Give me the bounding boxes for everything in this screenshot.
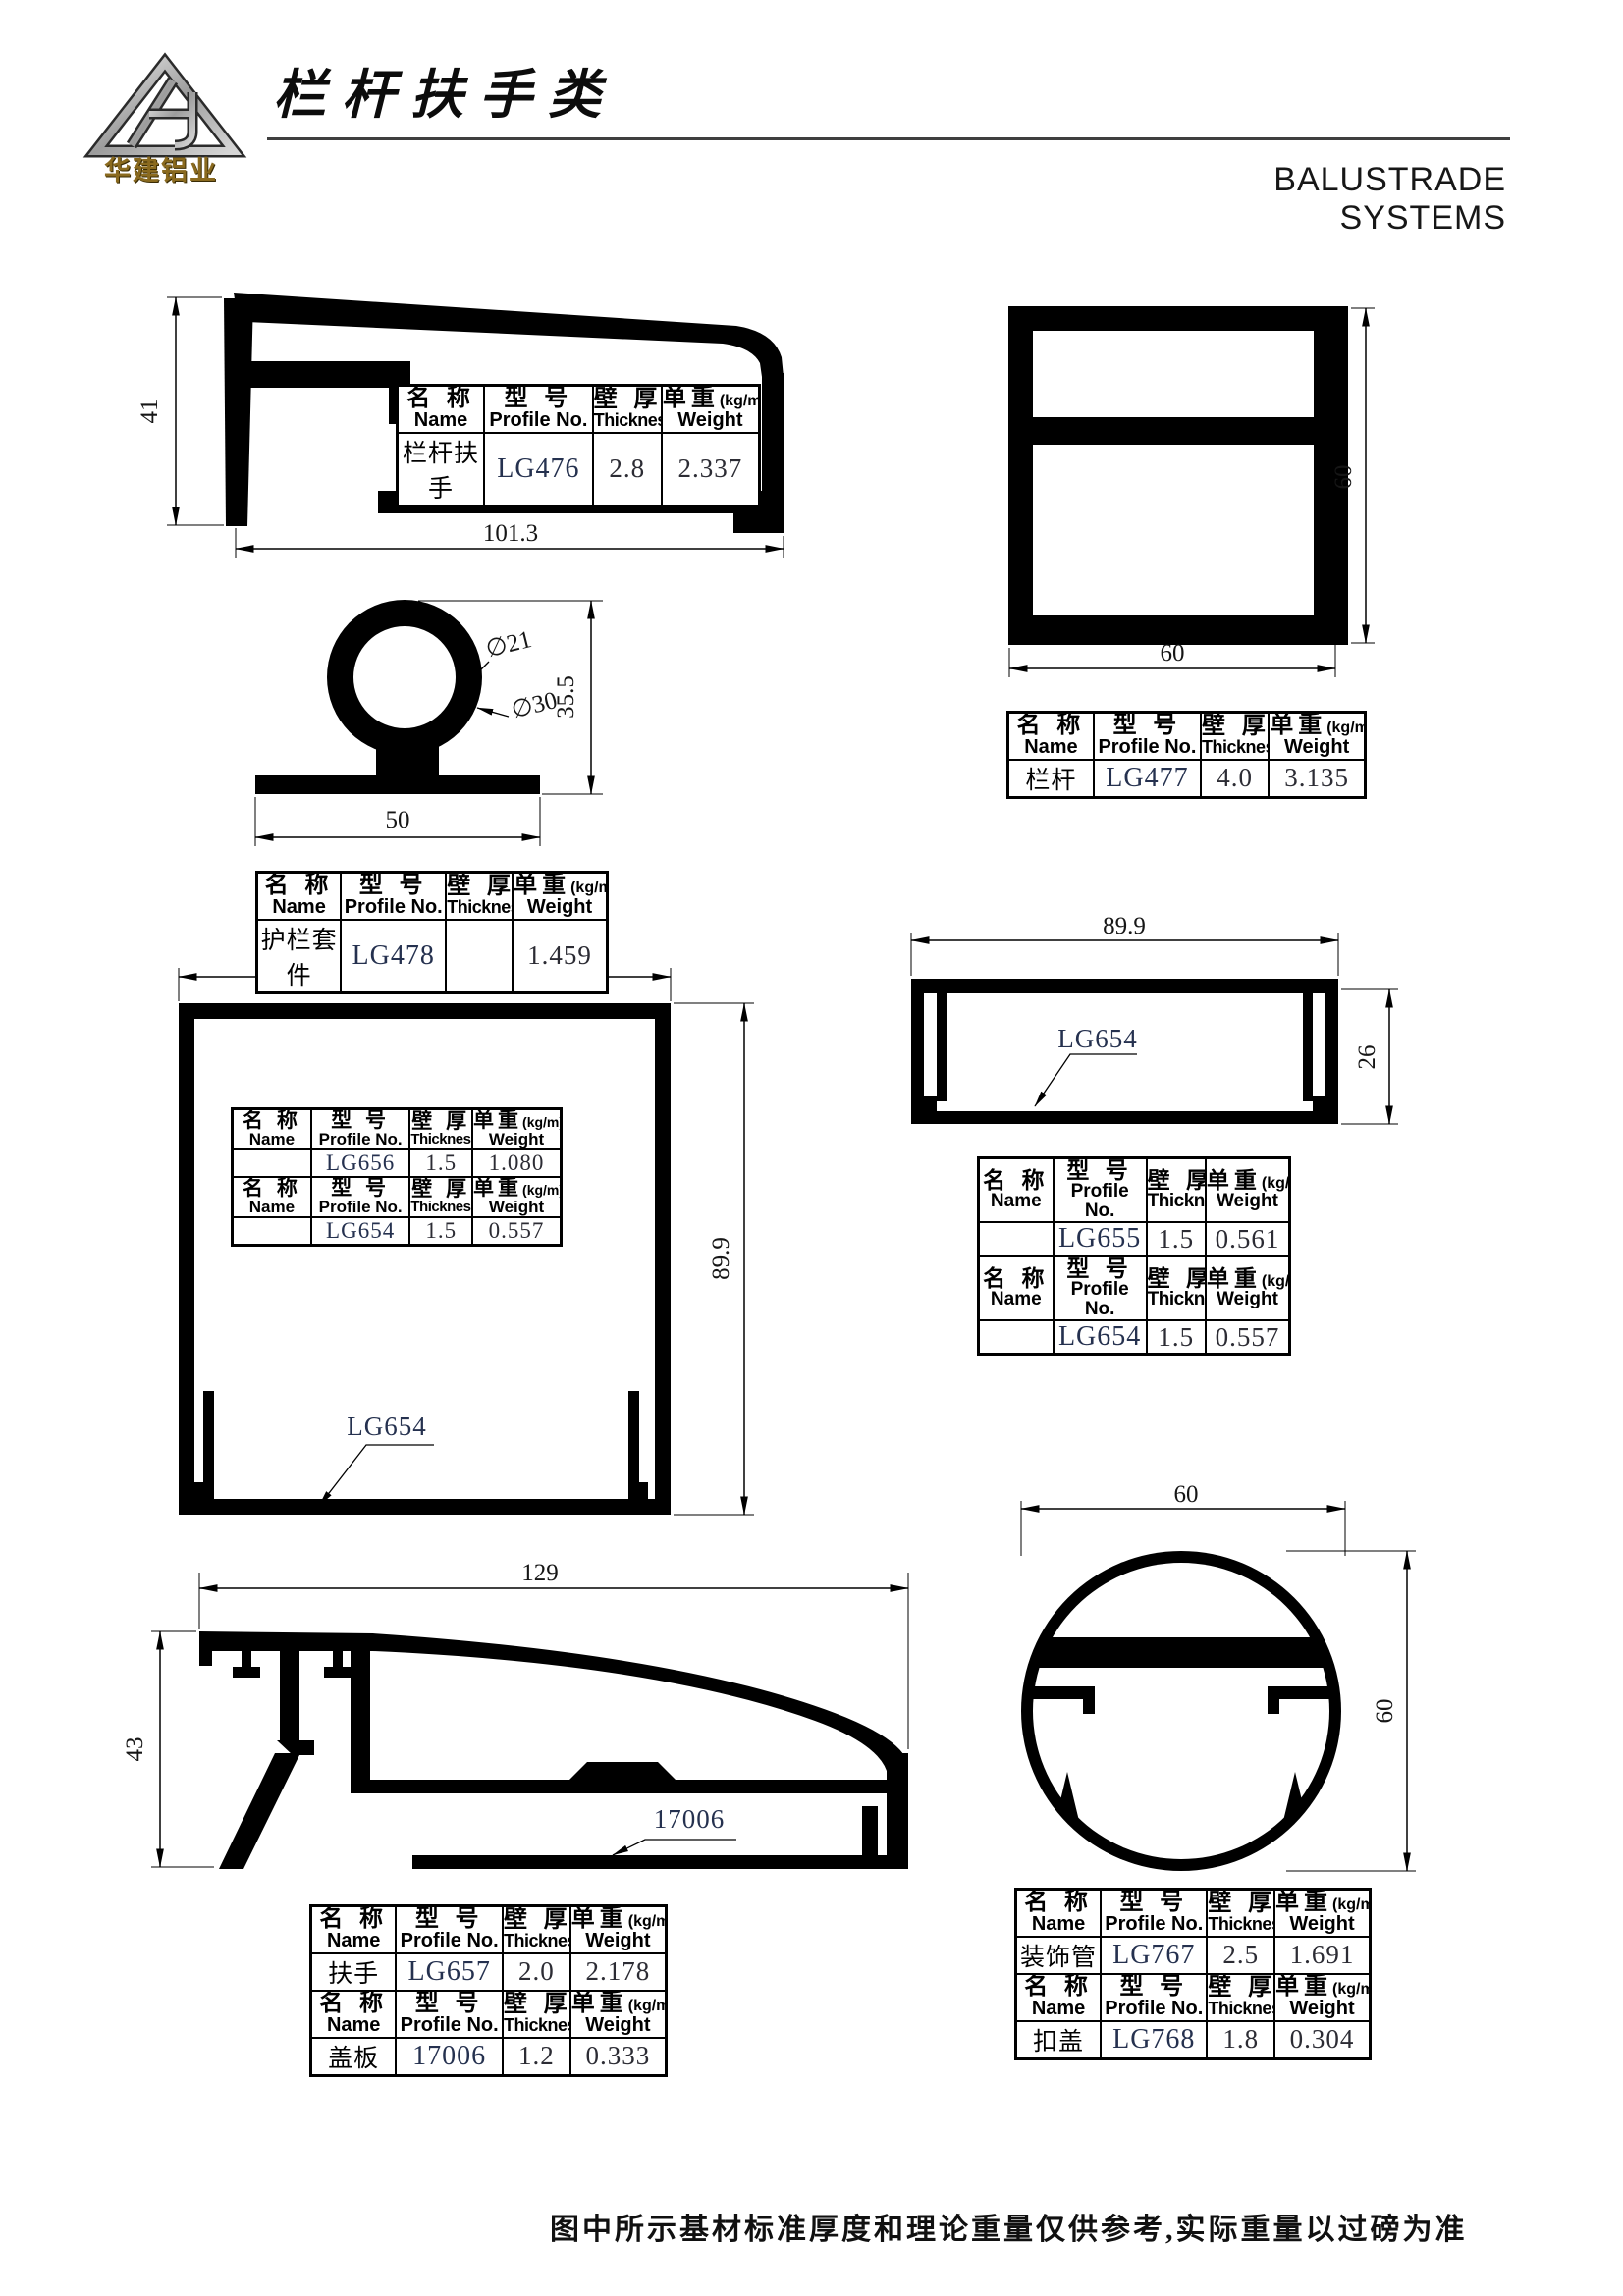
spec-table-rail-lg476: 名 称Name 型 号Profile No. 壁 厚Thickness 单重(k… (396, 384, 761, 507)
cell-weight: 1.459 (513, 920, 607, 993)
callout-lg654: LG654 (319, 1412, 434, 1506)
cell-name (979, 1320, 1054, 1355)
cell-name: 扣盖 (1016, 2021, 1102, 2059)
cell-weight: 0.557 (1206, 1320, 1290, 1355)
col-header-weight: 单重(kg/m)Weight (570, 1906, 667, 1953)
cell-weight: 2.178 (570, 1953, 667, 1991)
col-header-name: 名 称Name (979, 1158, 1054, 1222)
spec-table-tube-lg767: 名 称Name 型 号Profile No. 壁 厚Thickness 单重(k… (1014, 1888, 1372, 2060)
col-header-weight: 单重(kg/m)Weight (472, 1177, 561, 1217)
cell-profile-no: LG654 (1054, 1320, 1147, 1355)
cell-weight: 1.080 (472, 1149, 561, 1177)
drawing-box-lg656: 89.9 89.9 LG654 (118, 942, 766, 1592)
cell-thickness: 1.5 (1147, 1320, 1206, 1355)
col-header-thickness: 壁 厚Thickness (1207, 1974, 1274, 2021)
spec-table-channel-lg655: 名 称Name 型 号Profile No. 壁 厚Thickness 单重(k… (977, 1156, 1291, 1356)
cell-name: 栏杆扶手 (398, 433, 485, 507)
cell-thickness: 1.8 (1207, 2021, 1274, 2059)
profile-rail-lg657 (199, 1631, 908, 1869)
drawing-tube-lg767: 60 60 (1001, 1477, 1434, 1890)
cell-profile-no: LG477 (1094, 760, 1201, 798)
spec-row: LG655 1.5 0.561 (979, 1222, 1290, 1256)
col-header-name: 名 称Name (1016, 1974, 1102, 2021)
company-name: 华建铝业 (82, 149, 240, 187)
cell-weight: 0.557 (472, 1217, 561, 1246)
callout-label: LG654 (1057, 1024, 1138, 1053)
cell-thickness: 1.5 (1147, 1222, 1206, 1256)
col-header-name: 名 称Name (398, 386, 485, 433)
col-header-weight: 单重(kg/m)Weight (472, 1109, 561, 1149)
callout-label: LG654 (347, 1412, 427, 1441)
col-header-name: 名 称Name (257, 873, 342, 920)
cell-name: 护栏套件 (257, 920, 342, 993)
cell-thickness: 1.2 (503, 2038, 570, 2076)
col-header-weight: 单重(kg/m)Weight (1274, 1974, 1371, 2021)
dim-label: 60 (1372, 1699, 1398, 1724)
col-header-thickness: 壁 厚Thickness (503, 1991, 570, 2038)
cell-thickness: 2.5 (1207, 1937, 1274, 1974)
dim-label: 41 (136, 400, 163, 424)
cell-weight: 2.337 (662, 433, 760, 507)
cell-thickness: 2.8 (593, 433, 662, 507)
spec-table-box-lg656: 名 称Name 型 号Profile No. 壁 厚Thickness 单重(k… (231, 1107, 563, 1247)
spec-row: 栏杆扶手 LG476 2.8 2.337 (398, 433, 760, 507)
page-title: 栏杆扶手类 (273, 51, 617, 129)
footer-note: 图中所示基材标准厚度和理论重量仅供参考,实际重量以过磅为准 (550, 2205, 1468, 2248)
dim-label: 60 (1330, 465, 1357, 490)
spec-row: 装饰管 LG767 2.5 1.691 (1016, 1937, 1371, 1974)
dim-label: 35.5 (553, 675, 579, 719)
col-header-profile: 型 号Profile No. (311, 1109, 410, 1149)
cell-name (233, 1149, 311, 1177)
cell-name: 扶手 (311, 1953, 397, 1991)
col-header-profile: 型 号Profile No. (341, 873, 446, 920)
cell-thickness: 1.5 (409, 1217, 472, 1246)
callout-lg654: LG654 (1035, 1024, 1138, 1106)
col-header-profile: 型 号Profile No. (396, 1906, 503, 1953)
col-header-weight: 单重(kg/m)Weight (1269, 713, 1365, 760)
dim-height-89-9: 89.9 (674, 1003, 754, 1515)
company-logo (90, 59, 240, 155)
dim-label: 89.9 (708, 1237, 734, 1280)
dim-label: 129 (521, 1560, 559, 1586)
cell-name (233, 1217, 311, 1246)
logo-triangle-icon (96, 63, 234, 151)
dim-width-50: 50 (255, 797, 540, 846)
col-header-profile: 型 号Profile No. (396, 1991, 503, 2038)
cell-name (979, 1222, 1054, 1256)
profile-cover-17006 (412, 1855, 908, 1869)
col-header-profile: 型 号Profile No. (1054, 1256, 1147, 1320)
cell-profile-no: LG478 (341, 920, 446, 993)
drawing-sleeve-lg478: ∅21 ∅30 35.5 50 (177, 579, 628, 874)
spec-row: LG656 1.5 1.080 (233, 1149, 562, 1177)
col-header-profile: 型 号Profile No. (1054, 1158, 1147, 1222)
cell-name: 盖板 (311, 2038, 397, 2076)
catalog-page: 华建铝业 栏杆扶手类 BALUSTRADE SYSTEMS 41 101.3 (0, 0, 1623, 2296)
dim-height-41: 41 (136, 297, 224, 525)
col-header-thickness: 壁 厚Thickness (503, 1906, 570, 1953)
profile-sleeve-lg478 (255, 600, 540, 794)
col-header-weight: 单重(kg/m)Weight (1206, 1158, 1290, 1222)
col-header-profile: 型 号Profile No. (1101, 1974, 1207, 2021)
profile-tube-lg767 (1016, 1551, 1346, 1871)
cell-profile-no: LG657 (396, 1953, 503, 1991)
spec-row: 扶手 LG657 2.0 2.178 (311, 1953, 667, 1991)
col-header-name: 名 称Name (233, 1177, 311, 1217)
spec-table-sleeve-lg478: 名 称Name 型 号Profile No. 壁 厚Thickness 单重(k… (255, 871, 609, 994)
col-header-thickness: 壁 厚Thickness (409, 1109, 472, 1149)
cell-profile-no: LG768 (1101, 2021, 1207, 2059)
drawing-rail-lg657: 129 43 17006 (128, 1561, 933, 1895)
col-header-thickness: 壁 厚Thickness (1201, 713, 1269, 760)
dim-label: ∅21 (483, 626, 534, 664)
profile-post-lg477 (1008, 306, 1348, 645)
dim-label: 60 (1174, 1481, 1199, 1508)
col-header-thickness: 壁 厚Thickness (1147, 1158, 1206, 1222)
callout-label: 17006 (654, 1804, 726, 1834)
spec-row: LG654 1.5 0.557 (233, 1217, 562, 1246)
cell-profile-no: LG476 (484, 433, 593, 507)
dim-width-101-3: 101.3 (236, 520, 784, 558)
col-header-name: 名 称Name (311, 1906, 397, 1953)
cell-thickness: 2.0 (503, 1953, 570, 1991)
dim-label: 89.9 (1103, 913, 1146, 939)
col-header-name: 名 称Name (979, 1256, 1054, 1320)
col-header-weight: 单重(kg/m)Weight (662, 386, 760, 433)
spec-row: LG654 1.5 0.557 (979, 1320, 1290, 1355)
col-header-name: 名 称Name (1016, 1890, 1102, 1937)
cell-weight: 1.691 (1274, 1937, 1371, 1974)
cell-weight: 0.304 (1274, 2021, 1371, 2059)
dim-width-60: 60 (1021, 1481, 1345, 1556)
col-header-name: 名 称Name (311, 1991, 397, 2038)
label-dia-30: ∅30 (477, 687, 560, 724)
dim-label: 60 (1161, 640, 1185, 667)
col-header-profile: 型 号Profile No. (484, 386, 593, 433)
col-header-name: 名 称Name (233, 1109, 311, 1149)
col-header-thickness: 壁 厚Thickness (593, 386, 662, 433)
col-header-thickness: 壁 厚Thickness (409, 1177, 472, 1217)
col-header-thickness: 壁 厚Thickness (1147, 1256, 1206, 1320)
col-header-thickness: 壁 厚Thickness (446, 873, 513, 920)
cell-thickness (446, 920, 513, 993)
cell-name: 装饰管 (1016, 1937, 1102, 1974)
col-header-thickness: 壁 厚Thickness (1207, 1890, 1274, 1937)
spec-row: 栏杆 LG477 4.0 3.135 (1008, 760, 1366, 798)
cell-profile-no: LG655 (1054, 1222, 1147, 1256)
cell-thickness: 4.0 (1201, 760, 1269, 798)
cell-profile-no: LG654 (311, 1217, 410, 1246)
col-header-weight: 单重(kg/m)Weight (513, 873, 607, 920)
dim-label: 50 (386, 807, 410, 833)
col-header-profile: 型 号Profile No. (311, 1177, 410, 1217)
drawing-post-lg477: 60 60 (982, 285, 1404, 689)
cell-weight: 0.561 (1206, 1222, 1290, 1256)
cell-profile-no: 17006 (396, 2038, 503, 2076)
spec-table-rail-lg657: 名 称Name 型 号Profile No. 壁 厚Thickness 单重(k… (309, 1904, 668, 2077)
col-header-profile: 型 号Profile No. (1094, 713, 1201, 760)
cell-weight: 0.333 (570, 2038, 667, 2076)
dim-label: 26 (1354, 1045, 1380, 1070)
dim-label: 101.3 (483, 520, 538, 547)
cell-thickness: 1.5 (409, 1149, 472, 1177)
dim-label: 43 (122, 1737, 148, 1762)
col-header-weight: 单重(kg/m)Weight (570, 1991, 667, 2038)
dim-height-26: 26 (1341, 989, 1398, 1124)
col-header-weight: 单重(kg/m)Weight (1274, 1890, 1371, 1937)
cell-profile-no: LG767 (1101, 1937, 1207, 1974)
cell-weight: 3.135 (1269, 760, 1365, 798)
cell-profile-no: LG656 (311, 1149, 410, 1177)
spec-row: 盖板 17006 1.2 0.333 (311, 2038, 667, 2076)
col-header-name: 名 称Name (1008, 713, 1094, 760)
page-subtitle: BALUSTRADE SYSTEMS (1129, 161, 1506, 238)
callout-17006: 17006 (613, 1804, 736, 1855)
header-rule (267, 137, 1510, 140)
cell-name: 栏杆 (1008, 760, 1094, 798)
dim-width-89-9: 89.9 (911, 913, 1338, 976)
spec-table-post-lg477: 名 称Name 型 号Profile No. 壁 厚Thickness 单重(k… (1006, 711, 1367, 799)
drawing-channel-lg655: 89.9 26 LG654 (884, 903, 1434, 1148)
dim-height-43: 43 (122, 1631, 214, 1867)
spec-row: 扣盖 LG768 1.8 0.304 (1016, 2021, 1371, 2059)
col-header-profile: 型 号Profile No. (1101, 1890, 1207, 1937)
spec-row: 护栏套件 LG478 1.459 (257, 920, 608, 993)
col-header-weight: 单重(kg/m)Weight (1206, 1256, 1290, 1320)
